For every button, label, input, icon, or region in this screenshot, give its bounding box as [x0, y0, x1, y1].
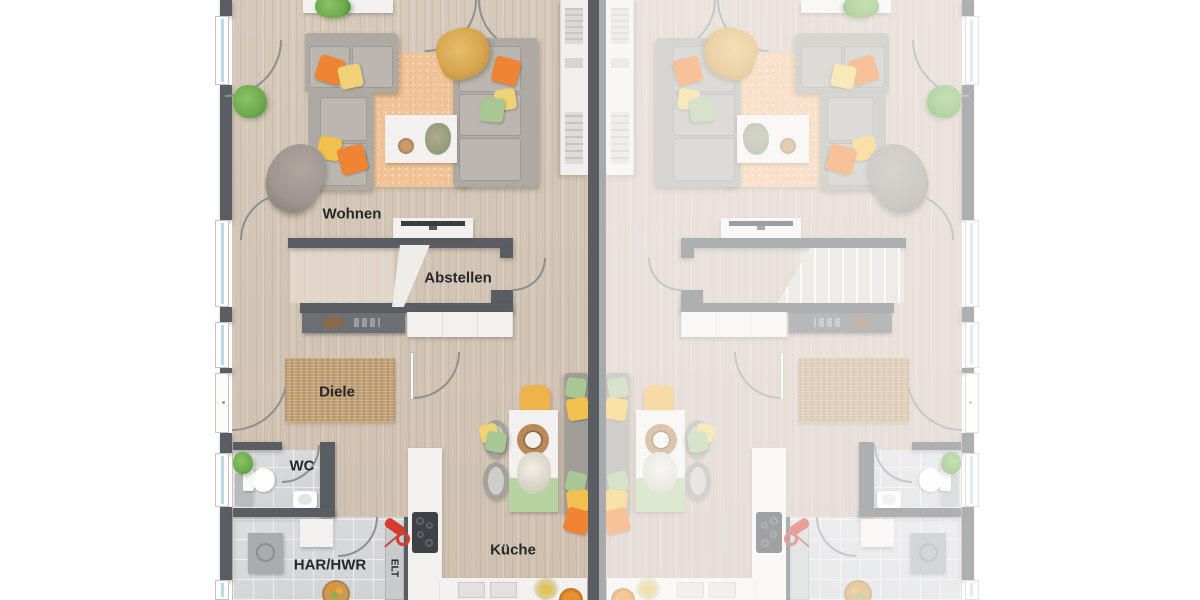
kitchen-door-leaf: [780, 352, 784, 400]
wc-north-wall: [912, 442, 961, 450]
shelf-items: [565, 8, 583, 44]
wc-north-wall: [233, 442, 282, 450]
dining-chair: [520, 385, 550, 411]
room-label-har-hwr: HAR/HWR: [294, 557, 367, 574]
shoes: [814, 318, 840, 327]
shelf-items: [565, 112, 583, 164]
room-label-diele: Diele: [319, 384, 355, 401]
exterior-wall: [962, 433, 974, 453]
wc-south-wall: [233, 508, 335, 517]
vacuum-cleaner: [778, 516, 814, 552]
bag: [323, 316, 342, 329]
wc-south-wall: [859, 508, 961, 517]
exterior-wall: [220, 307, 232, 322]
room-label-kueche: Küche: [490, 542, 536, 559]
living-room-south-wall: [681, 238, 906, 248]
tv-stand: [757, 226, 765, 230]
dining-chair: [644, 385, 674, 411]
coffee-table: [737, 115, 809, 163]
window: [965, 453, 979, 507]
window: [215, 580, 229, 600]
pillow: [337, 63, 364, 90]
wc-sink: [293, 491, 317, 508]
table-flowers: [643, 452, 677, 494]
bag: [851, 316, 870, 329]
pillow: [603, 396, 628, 421]
pillow: [686, 430, 709, 453]
unit-left: Wohnen Abstellen Diele WC HAR/HWR ELT Kü…: [214, 0, 588, 600]
window: [215, 453, 229, 507]
shelf-items: [565, 58, 583, 68]
built-in-closet: [681, 312, 787, 337]
dining-chair: [483, 462, 509, 500]
storage-wall: [681, 248, 694, 258]
shelf-items: [611, 58, 629, 68]
exterior-wall: [220, 507, 232, 580]
vacuum-cleaner: [380, 516, 416, 552]
pillow: [689, 97, 715, 123]
exterior-wall: [962, 507, 974, 580]
built-in-closet: [407, 312, 513, 337]
shelf-items: [611, 8, 629, 44]
coat-rack-shelf: [789, 313, 892, 333]
wall-shelf-unit: [560, 0, 589, 175]
utility-cabinet: [861, 519, 894, 547]
shoes: [354, 318, 380, 327]
wc-east-wall: [859, 442, 874, 517]
party-wall: [588, 0, 606, 600]
potted-plant: [927, 85, 961, 118]
decor-plant: [743, 123, 769, 155]
staircase-zone: [290, 248, 394, 303]
pillow: [565, 396, 590, 421]
exterior-wall: [962, 307, 974, 322]
sink-basin: [458, 582, 485, 598]
room-label-wohnen: Wohnen: [323, 206, 382, 223]
flower-vase: [533, 574, 559, 600]
exterior-wall: [220, 433, 232, 453]
tv-sideboard: [393, 218, 473, 238]
wc-east-wall: [320, 442, 335, 517]
pillow: [484, 430, 507, 453]
front-door: [965, 373, 979, 433]
exterior-wall: [220, 85, 232, 220]
wall-shelf-unit: [605, 0, 634, 175]
fruit-bowl: [558, 587, 584, 600]
wc-sink: [877, 491, 901, 508]
hallway-jute-rug: [799, 358, 909, 422]
decor-plant: [425, 123, 451, 155]
storage-wall: [500, 248, 513, 258]
window: [215, 220, 229, 307]
exterior-wall: [220, 0, 232, 16]
front-door: [215, 373, 229, 433]
decor-tray: [780, 138, 796, 154]
potted-plant: [233, 452, 253, 474]
toilet-bowl: [919, 468, 942, 492]
exterior-wall: [962, 0, 974, 16]
toilet-bowl: [252, 468, 275, 492]
kitchen-door-leaf: [410, 352, 414, 400]
flower-vase: [635, 574, 661, 600]
tv-stand: [429, 226, 437, 230]
potted-plant: [941, 452, 961, 474]
room-label-elt: ELT: [389, 559, 400, 577]
pillow: [830, 63, 857, 90]
sink-basin: [490, 582, 517, 598]
sink-basin: [677, 582, 704, 598]
window: [215, 322, 229, 368]
window: [965, 580, 979, 600]
fruit-basket: [320, 578, 352, 600]
fruit-basket: [842, 578, 874, 600]
coffee-table: [385, 115, 457, 163]
window: [965, 220, 979, 307]
sink-basin: [709, 582, 736, 598]
floor-plan: Wohnen Abstellen Diele WC HAR/HWR ELT Kü…: [0, 0, 1200, 600]
dining-chair: [685, 462, 711, 500]
unit-right: Wohnen Abstellen Diele WC HAR/HWR ELT Kü…: [606, 0, 980, 600]
pillow: [479, 97, 505, 123]
exterior-wall: [962, 85, 974, 220]
coat-rack-shelf: [302, 313, 405, 333]
room-label-abstellen: Abstellen: [424, 270, 492, 287]
room-label-wc: WC: [290, 458, 315, 475]
washing-machine: [248, 533, 283, 573]
window: [965, 322, 979, 368]
fruit-bowl: [610, 587, 636, 600]
shelf-items: [611, 112, 629, 164]
utility-cabinet: [300, 519, 333, 547]
potted-plant: [233, 85, 267, 118]
tv-sideboard: [721, 218, 801, 238]
decor-tray: [398, 138, 414, 154]
washing-machine: [911, 533, 946, 573]
